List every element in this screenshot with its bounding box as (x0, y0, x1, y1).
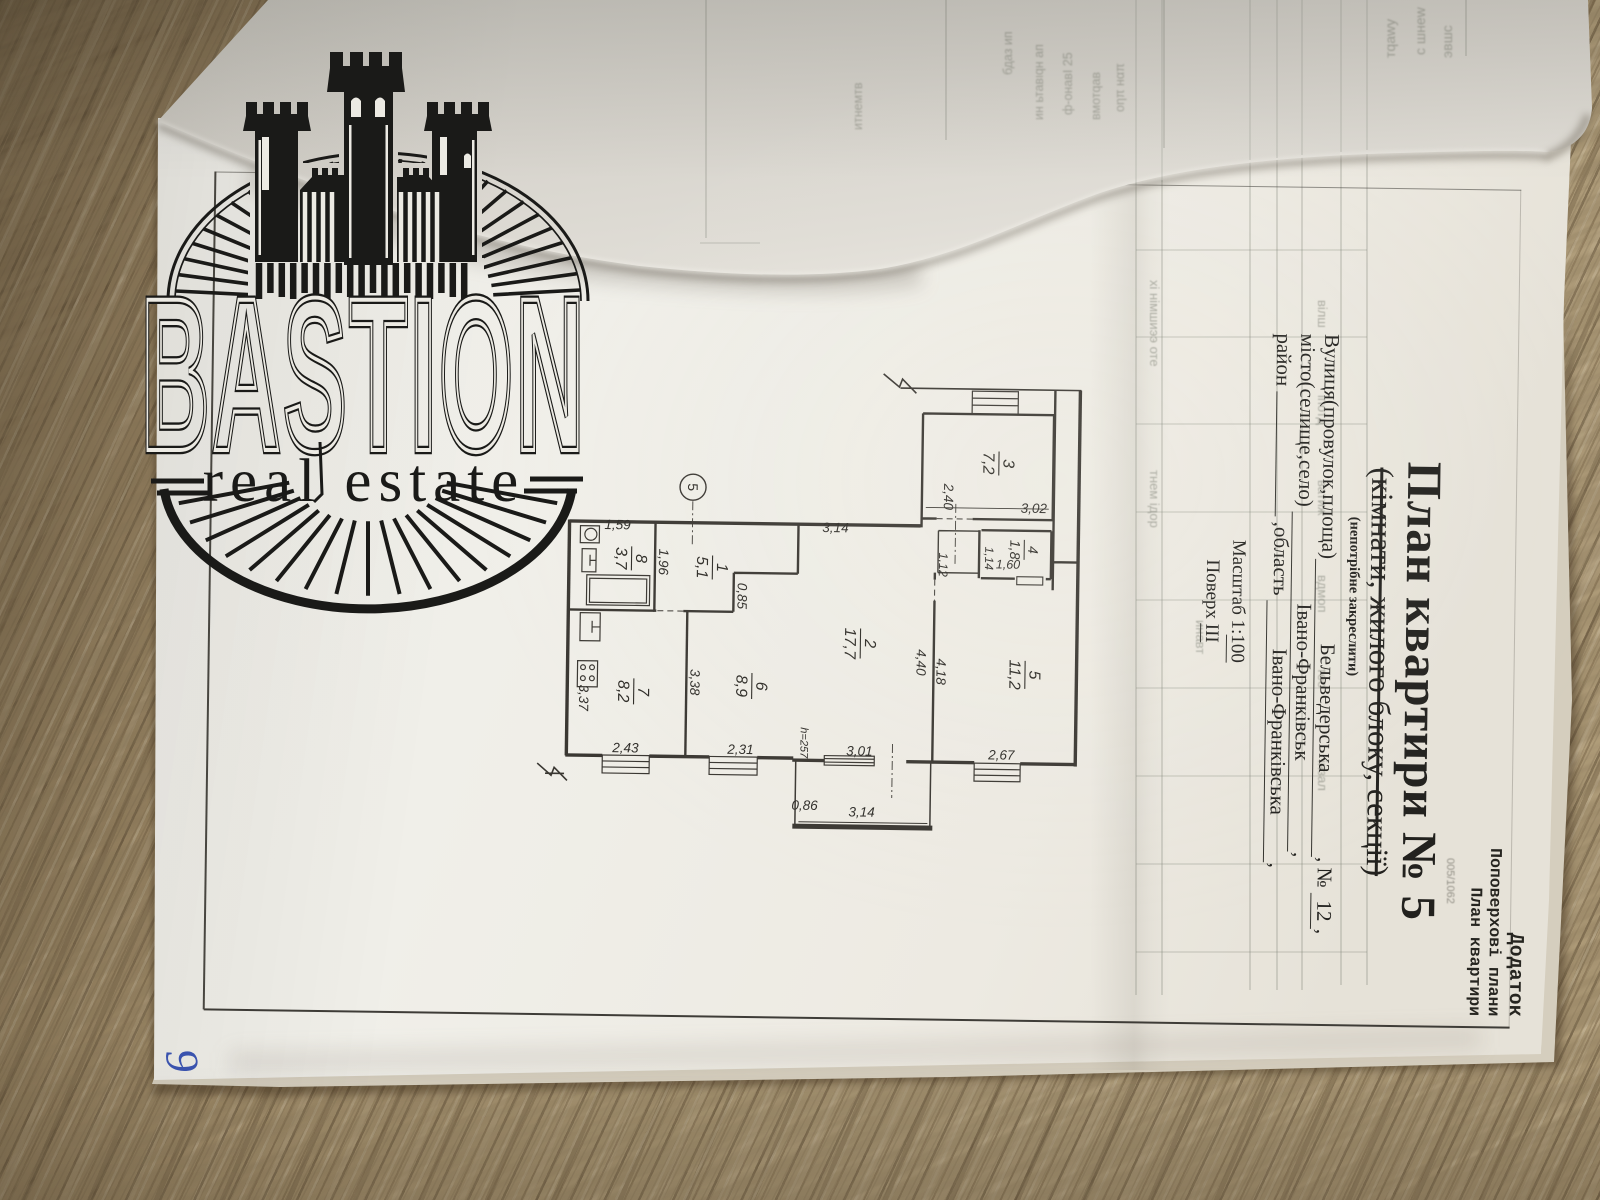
svg-text:real estate: real estate (203, 448, 526, 515)
